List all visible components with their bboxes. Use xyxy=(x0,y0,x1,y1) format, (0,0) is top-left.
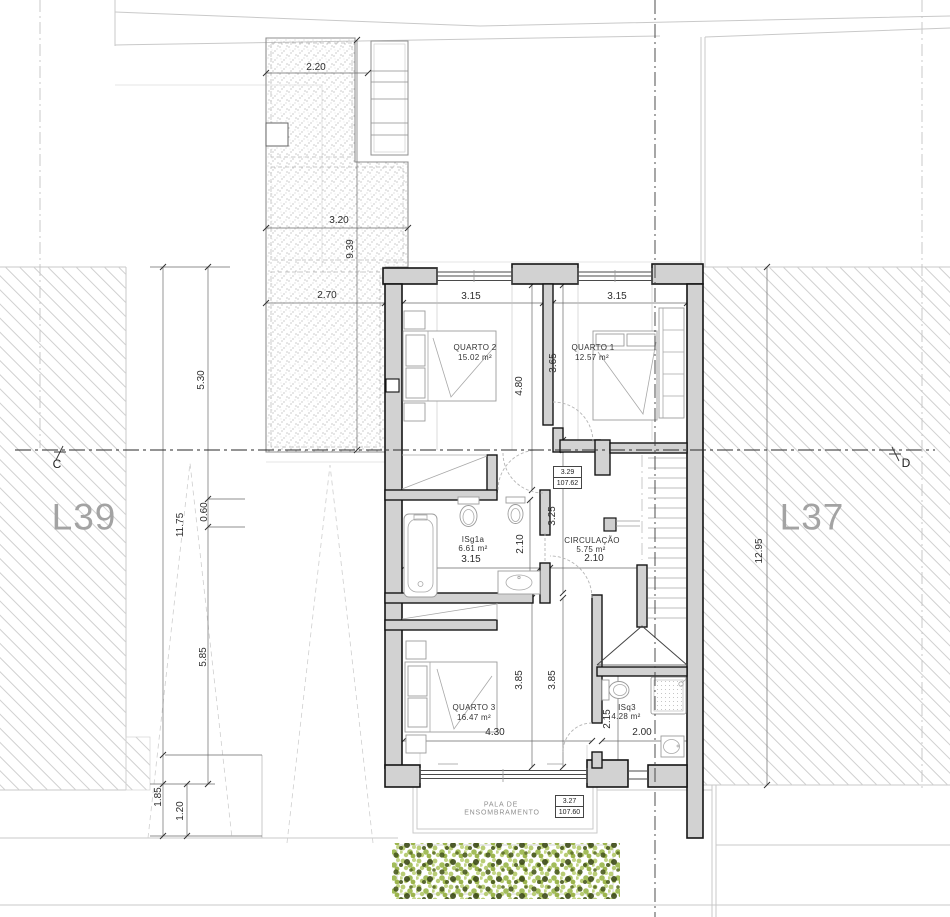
sink-isq3 xyxy=(661,736,684,757)
lot-label-l39: L39 xyxy=(52,499,117,536)
canopy-label-line2: ENSOMBRAMENTO xyxy=(464,810,540,817)
level-lower-absolute: 107.60 xyxy=(556,807,583,817)
dim-quarto1-width: 3.15 xyxy=(607,292,626,302)
room-label-quarto3: QUARTO 3 xyxy=(452,704,495,712)
bed-quarto2 xyxy=(403,311,496,421)
plan-drawing xyxy=(0,0,950,917)
toilet-isg1a xyxy=(458,497,479,527)
shower-isq3 xyxy=(651,677,686,714)
room-area-quarto1: 12.57 m² xyxy=(575,354,609,362)
terrace-vent-box xyxy=(266,123,288,146)
dim-terrace-bottom: 2.70 xyxy=(317,291,336,301)
toilet-isq3 xyxy=(602,680,629,700)
level-lower-relative: 3.27 xyxy=(556,796,583,807)
dim-quarto3-height-b: 3.85 xyxy=(548,670,558,689)
stair-newel-post xyxy=(604,518,616,531)
floor-plan: 2.20 3.20 9.39 2.70 5.30 11.75 0.60 5.85… xyxy=(0,0,950,917)
room-area-isq3: 4.28 m² xyxy=(611,713,640,721)
room-label-quarto1: QUARTO 1 xyxy=(571,344,614,352)
dim-terrace-mid: 3.20 xyxy=(329,216,348,226)
dim-terrace-top: 2.20 xyxy=(306,63,325,73)
dim-left-585: 5.85 xyxy=(199,647,209,666)
section-marker-c: C xyxy=(53,458,62,470)
level-upper-absolute: 107.62 xyxy=(554,478,581,488)
dim-isq3-width: 2.00 xyxy=(632,728,651,738)
staircase xyxy=(597,455,687,665)
dim-isg1a-width: 3.15 xyxy=(461,555,480,565)
room-label-isq3: ISq3 xyxy=(618,704,636,712)
bathtub xyxy=(404,514,437,597)
lot-label-l37: L37 xyxy=(780,499,845,536)
dim-quarto3-width: 4.30 xyxy=(485,728,504,738)
dim-isg1a-height: 2.10 xyxy=(516,534,526,553)
dim-left-530: 5.30 xyxy=(197,370,207,389)
vegetation xyxy=(392,843,620,899)
dim-quarto1-height: 3.65 xyxy=(549,353,559,372)
canopy-label-line1: PALA DE xyxy=(484,802,518,809)
dim-left-1175: 11.75 xyxy=(176,513,186,537)
sink-isg1a xyxy=(498,571,540,594)
room-area-quarto3: 16.47 m² xyxy=(457,714,491,722)
room-area-circulacao: 5.75 m² xyxy=(576,546,605,554)
dim-quarto2-height: 4.80 xyxy=(515,376,525,395)
dim-left-120: 1.20 xyxy=(176,801,186,820)
dim-right-1295: 12.95 xyxy=(755,538,765,563)
pergola-slats xyxy=(371,41,408,155)
room-area-quarto2: 15.02 m² xyxy=(458,354,492,362)
dim-left-185: 1.85 xyxy=(154,787,164,806)
room-label-quarto2: QUARTO 2 xyxy=(453,344,496,352)
room-label-circulacao: CIRCULAÇÃO xyxy=(564,537,619,545)
dim-quarto2-width: 3.15 xyxy=(461,292,480,302)
bidet-isg1a xyxy=(506,497,525,524)
dim-quarto3-height-a: 3.85 xyxy=(515,670,525,689)
room-label-isg1a: ISg1a xyxy=(462,536,484,544)
bed-quarto3 xyxy=(405,641,497,753)
level-upper-relative: 3.29 xyxy=(554,467,581,478)
wall-vent-square xyxy=(386,379,399,392)
level-marker-lower: 3.27 107.60 xyxy=(555,795,584,818)
dim-left-060: 0.60 xyxy=(200,502,210,521)
room-area-isg1a: 6.61 m² xyxy=(458,545,487,553)
section-marker-d: D xyxy=(902,457,911,469)
level-marker-upper: 3.29 107.62 xyxy=(553,466,582,489)
dim-circulacao-width: 2.10 xyxy=(584,554,603,564)
dim-terrace-length: 9.39 xyxy=(346,239,356,258)
wardrobe-quarto1 xyxy=(659,308,684,418)
dim-hall-height: 3.25 xyxy=(548,506,558,525)
